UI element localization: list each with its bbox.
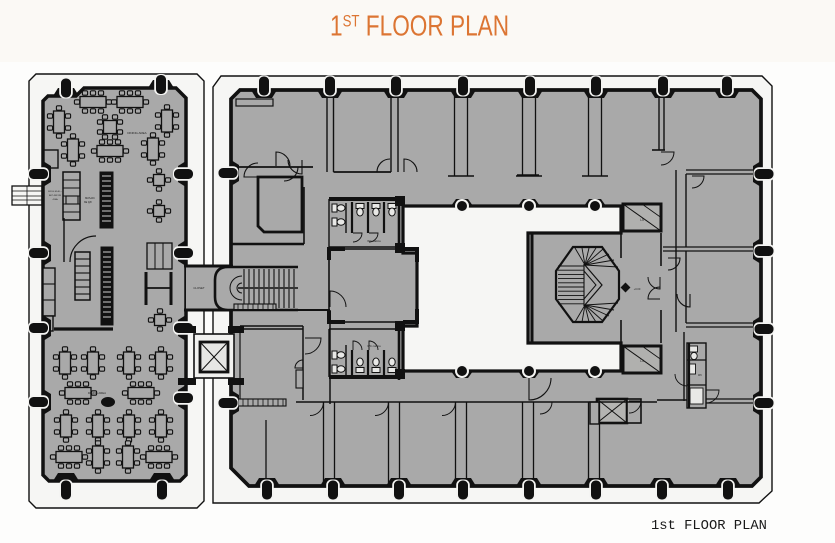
svg-text:B1 D4 4140 +: B1 D4 4140 + (48, 191, 62, 193)
svg-text:L5: L5 (640, 359, 644, 363)
svg-text:1st FLOOR PLAN: 1st FLOOR PLAN (651, 519, 767, 534)
svg-text:B0? 4N2 2R: B0? 4N2 2R (49, 195, 61, 197)
svg-text:WC cabins: WC cabins (367, 239, 381, 243)
svg-text:MAT+DC: MAT+DC (85, 197, 95, 200)
svg-text:WC cabins: WC cabins (367, 344, 381, 348)
svg-text:DINING AREA: DINING AREA (127, 131, 146, 135)
svg-text:410A: 410A (52, 198, 58, 201)
svg-text:CLOSET: CLOSET (193, 286, 204, 290)
svg-text:KE Q/F: KE Q/F (84, 201, 92, 204)
svg-text:WC: WC (698, 374, 702, 377)
svg-text:+0.00: +0.00 (634, 287, 641, 291)
svg-text:DINING AREA: DINING AREA (88, 391, 106, 395)
svg-text:L5: L5 (640, 218, 644, 222)
